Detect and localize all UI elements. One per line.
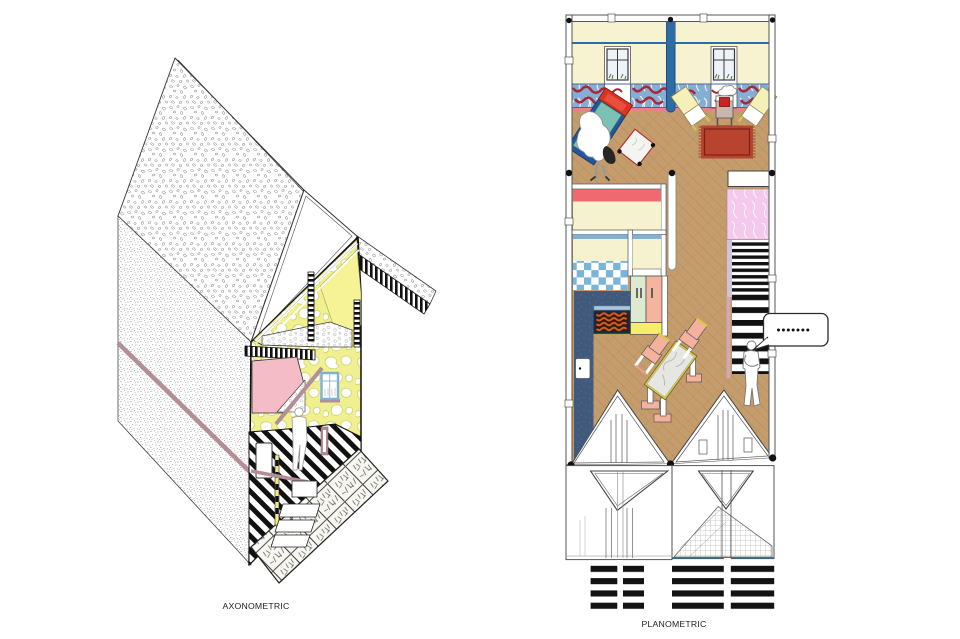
svg-text:PLANOMETRIC: PLANOMETRIC — [642, 619, 707, 629]
svg-text:AXONOMETRIC: AXONOMETRIC — [223, 601, 290, 611]
